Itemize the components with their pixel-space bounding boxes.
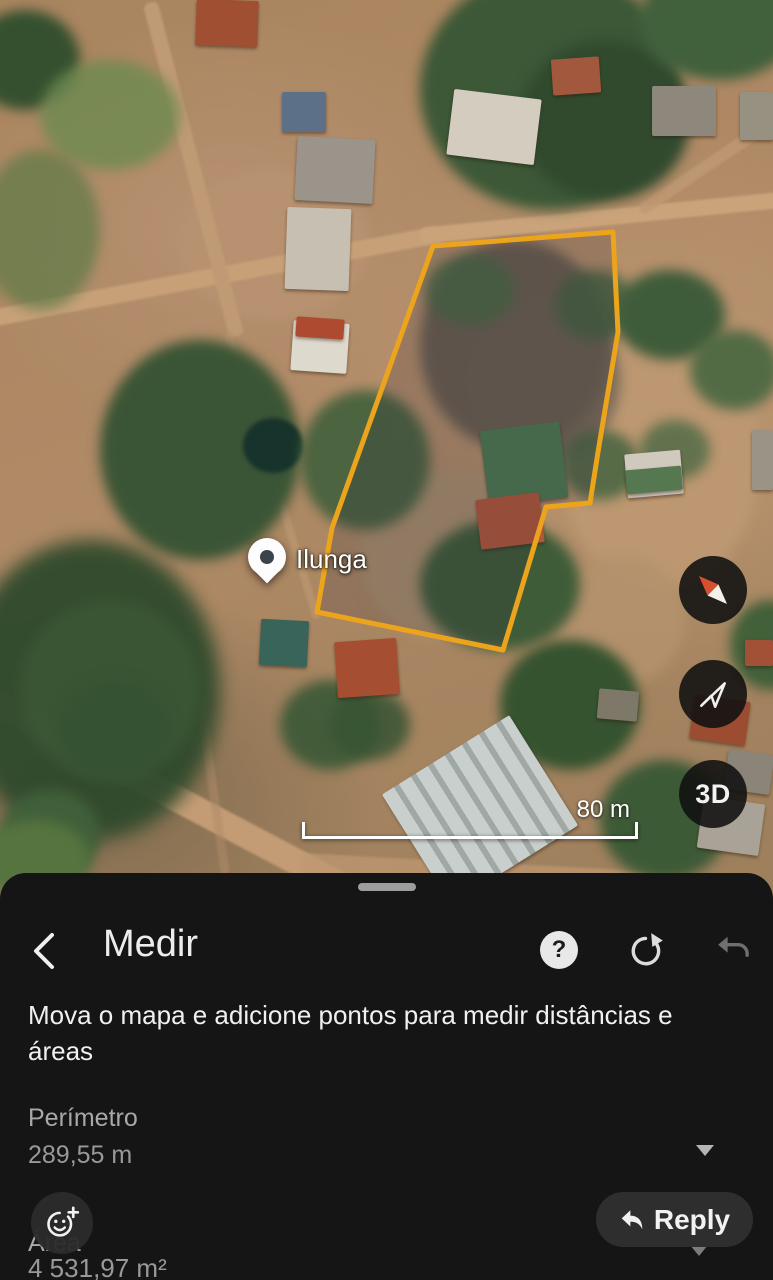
three-d-label: 3D xyxy=(695,779,731,810)
satellite-map[interactable]: Ilunga 80 m 3D xyxy=(0,0,773,900)
redo-icon xyxy=(628,931,666,969)
measurement-polygon[interactable] xyxy=(0,0,773,900)
perimeter-label: Perímetro xyxy=(28,1104,138,1133)
measure-bottom-sheet: Medir ? Mova o mapa e adicione pontos pa… xyxy=(0,873,773,1280)
add-reaction-button[interactable] xyxy=(31,1192,93,1254)
reply-button[interactable]: Reply xyxy=(596,1192,753,1247)
smiley-plus-icon xyxy=(44,1205,80,1241)
reply-label: Reply xyxy=(654,1204,730,1236)
scale-bar-line xyxy=(302,822,638,839)
perimeter-dropdown-icon[interactable] xyxy=(696,1145,714,1156)
map-pin-label: Ilunga xyxy=(296,544,367,575)
undo-icon xyxy=(716,931,754,969)
reply-arrow-icon xyxy=(619,1208,645,1232)
chevron-left-icon xyxy=(26,931,62,971)
compass-button[interactable] xyxy=(679,556,747,624)
map-pin-dot xyxy=(260,550,274,564)
area-value: 4 531,97 m² xyxy=(28,1253,167,1280)
scale-bar-label: 80 m xyxy=(577,796,630,824)
map-pin[interactable] xyxy=(248,538,286,602)
navigation-arrow-icon xyxy=(696,677,730,711)
phone-screen: Ilunga 80 m 3D Medir xyxy=(0,0,773,1280)
help-button[interactable]: ? xyxy=(540,931,578,969)
drag-handle[interactable] xyxy=(358,883,416,891)
redo-button[interactable] xyxy=(628,931,666,969)
question-mark-icon: ? xyxy=(552,936,567,964)
page-title: Medir xyxy=(103,923,198,966)
instruction-text: Mova o mapa e adicione pontos para medir… xyxy=(28,997,742,1069)
my-location-button[interactable] xyxy=(679,660,747,728)
scale-bar: 80 m xyxy=(302,798,638,840)
perimeter-value: 289,55 m xyxy=(28,1141,132,1170)
undo-button[interactable] xyxy=(716,931,754,969)
three-d-button[interactable]: 3D xyxy=(679,760,747,828)
compass-needle-icon xyxy=(682,559,744,621)
back-button[interactable] xyxy=(26,931,62,971)
